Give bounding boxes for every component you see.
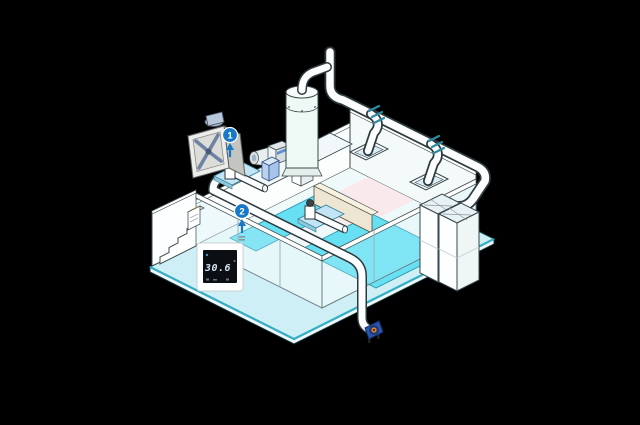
diagram-stage: 30.6 ° 1 2 <box>0 0 640 425</box>
screen-icon-mid <box>213 279 217 281</box>
air-handling-unit-2 <box>439 203 479 291</box>
air-handling-units <box>420 194 479 291</box>
valve-knob <box>307 200 314 207</box>
degree-mark: ° <box>233 260 236 266</box>
thermostat-panel: 30.6 ° <box>197 243 243 291</box>
screen-icon-right <box>226 279 229 281</box>
badge-1-label: 1 <box>227 130 233 141</box>
badge-2-label: 2 <box>239 206 244 217</box>
status-led <box>206 254 208 256</box>
isometric-pool-ventilation-diagram: 30.6 ° 1 2 <box>0 0 640 425</box>
target-tick-1 <box>239 236 245 238</box>
filter-tank-icon <box>282 86 322 176</box>
target-tick-2 <box>239 239 245 241</box>
control-cabinet-icon <box>262 157 279 181</box>
screen-icon-left <box>206 279 209 281</box>
thermostat-reading: 30.6 <box>204 263 231 274</box>
